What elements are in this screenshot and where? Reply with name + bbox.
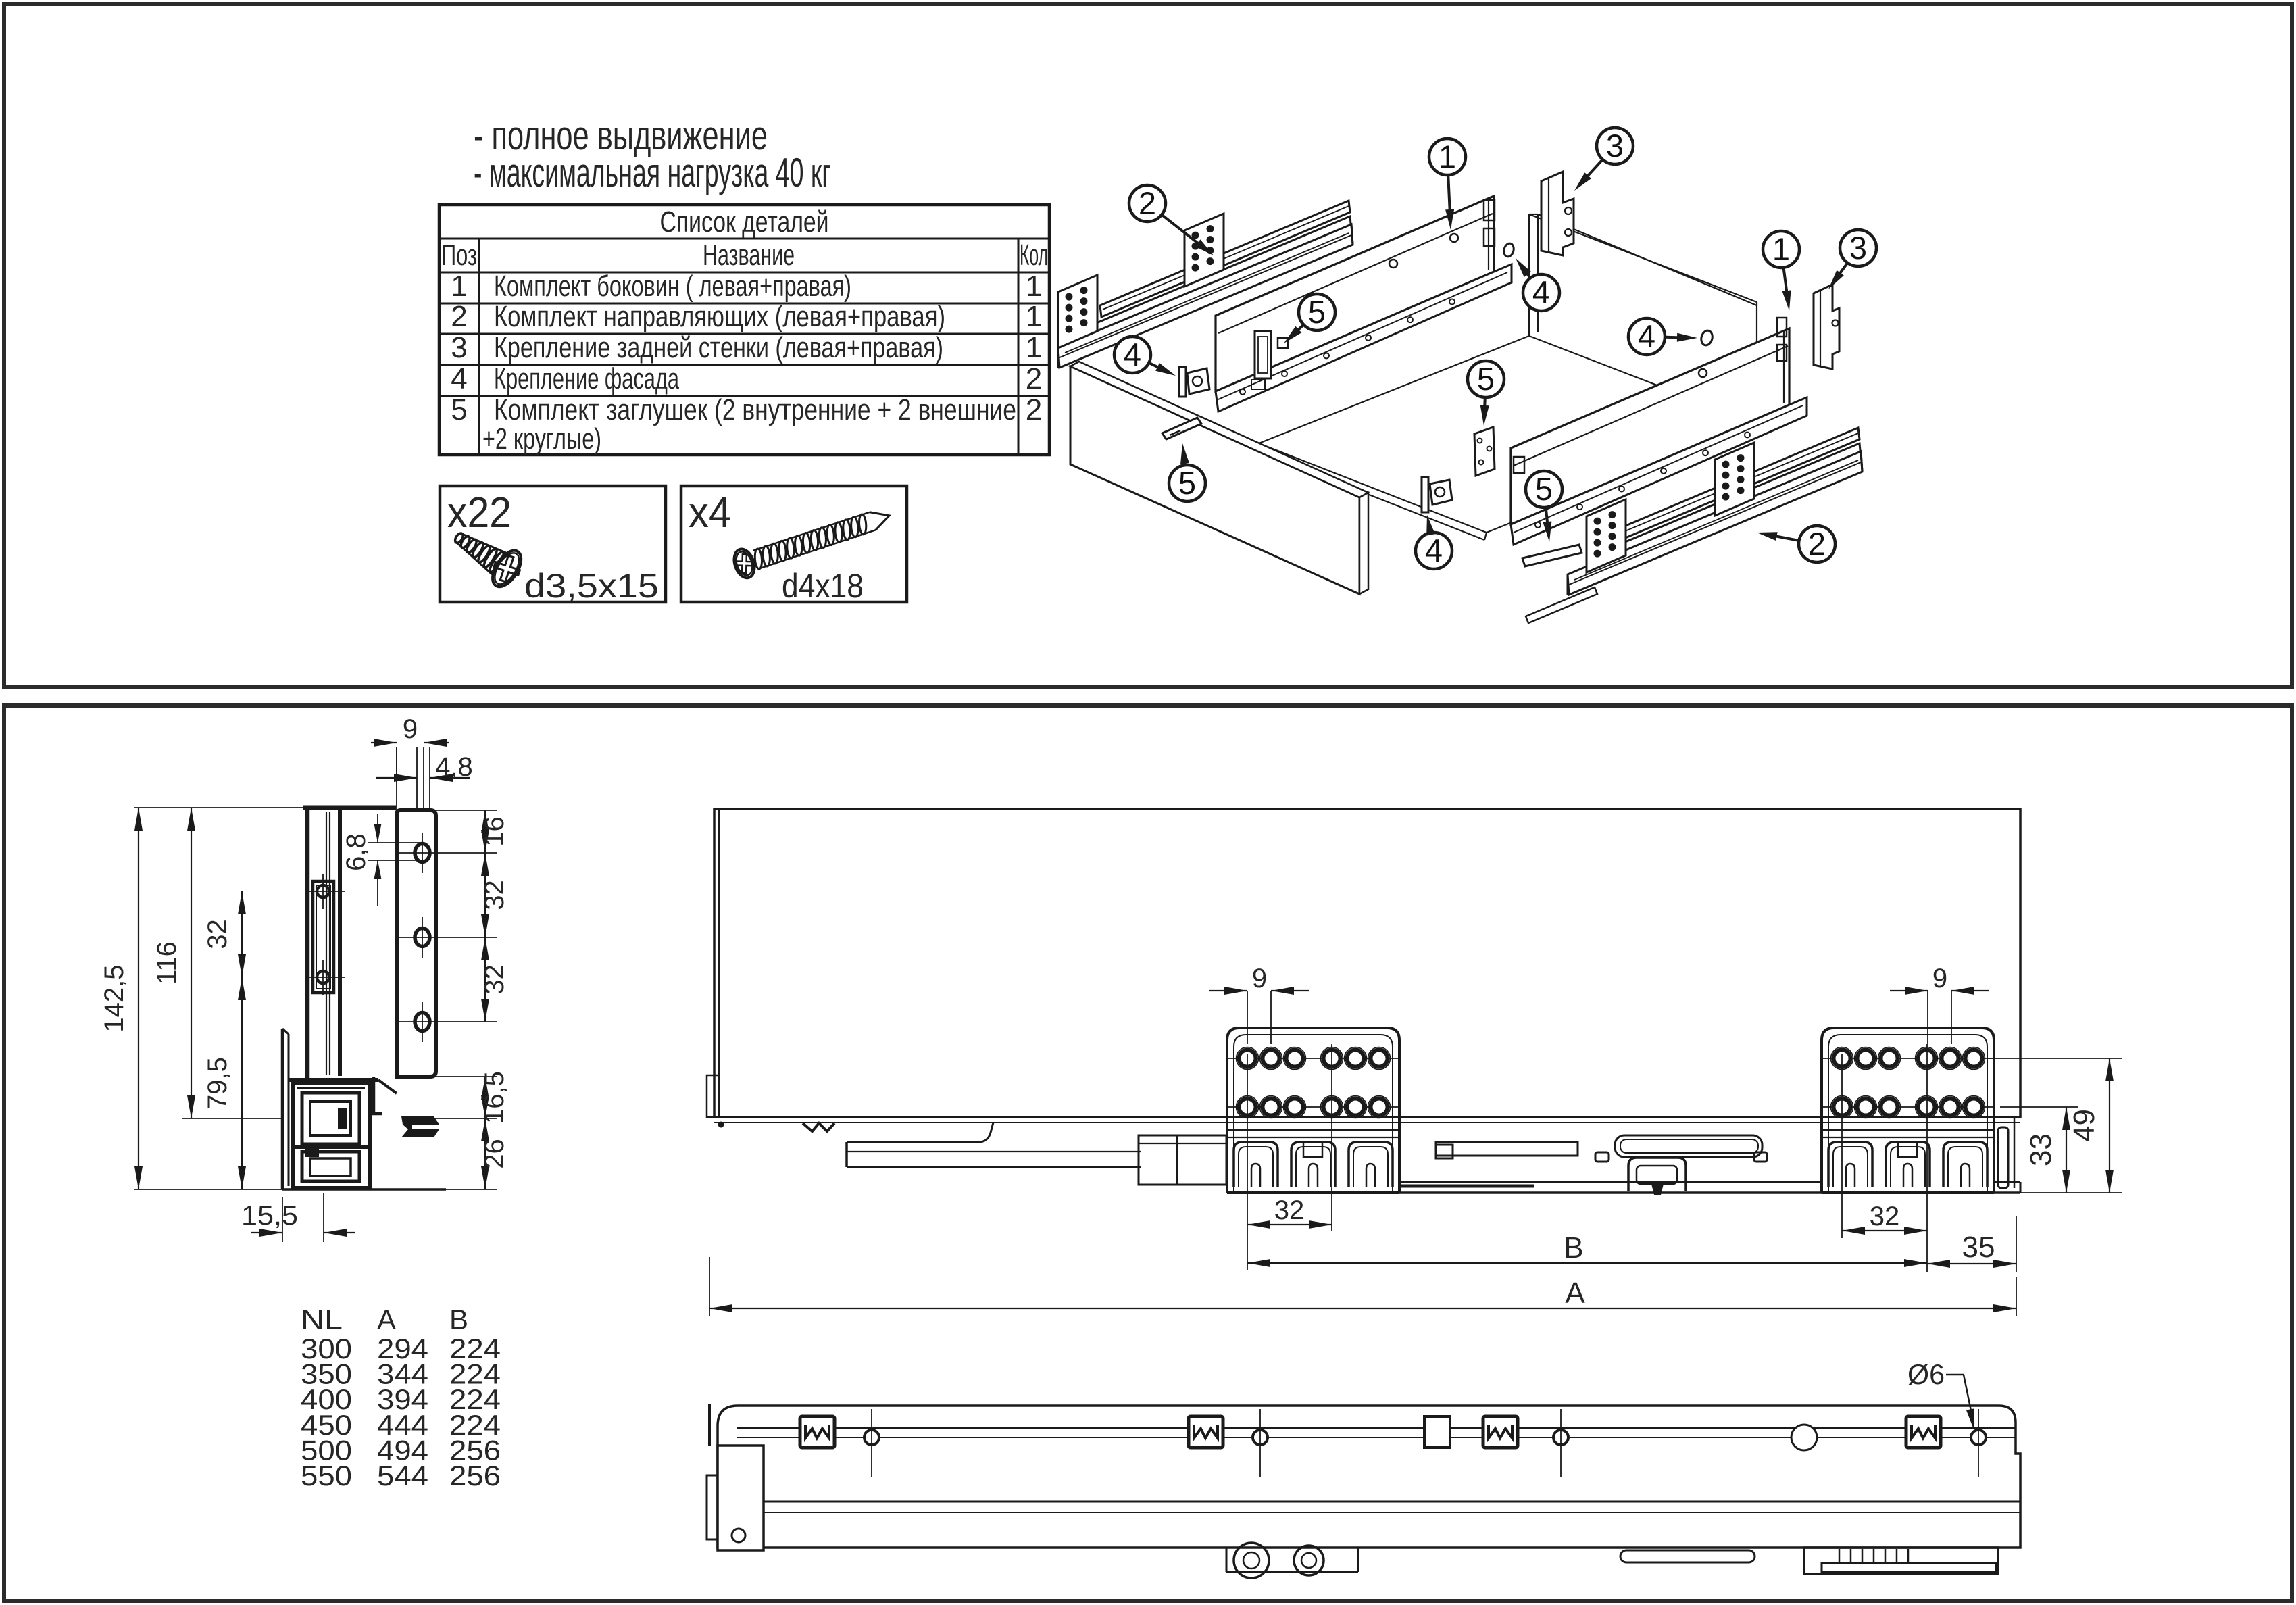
svg-text:2: 2 — [1026, 393, 1042, 426]
svg-text:5: 5 — [1178, 465, 1196, 501]
svg-text:49: 49 — [2068, 1109, 2101, 1142]
svg-text:- максимальная нагрузка 40 кг: - максимальная нагрузка 40 кг — [474, 150, 831, 195]
svg-text:142,5: 142,5 — [99, 964, 129, 1032]
svg-text:32: 32 — [480, 964, 509, 995]
svg-text:33: 33 — [2024, 1133, 2057, 1166]
svg-text:Крепление фасада: Крепление фасада — [494, 362, 679, 395]
svg-text:5: 5 — [451, 393, 467, 426]
svg-text:16,5: 16,5 — [480, 1071, 509, 1124]
svg-text:Поз: Поз — [441, 239, 477, 272]
svg-text:4: 4 — [1425, 533, 1443, 568]
svg-text:Ø6: Ø6 — [1907, 1358, 1945, 1390]
svg-text:1: 1 — [1026, 300, 1042, 333]
svg-text:x4: x4 — [689, 488, 731, 537]
svg-text:79,5: 79,5 — [203, 1057, 232, 1110]
svg-text:9: 9 — [1932, 964, 1947, 993]
svg-text:1: 1 — [451, 270, 467, 303]
svg-text:Комплект направляющих (левая+п: Комплект направляющих (левая+правая) — [494, 300, 945, 333]
svg-text:4: 4 — [1532, 274, 1550, 310]
svg-text:2: 2 — [1808, 526, 1826, 562]
svg-text:Список деталей: Список деталей — [660, 205, 829, 239]
svg-text:Крепление задней стенки (левая: Крепление задней стенки (левая+правая) — [494, 331, 943, 364]
svg-text:5: 5 — [1477, 361, 1495, 397]
svg-text:Комплект заглушек (2 внутренни: Комплект заглушек (2 внутренние + 2 внеш… — [494, 393, 1016, 426]
svg-text:16: 16 — [480, 816, 509, 847]
svg-text:3: 3 — [1849, 230, 1867, 266]
svg-text:32: 32 — [480, 880, 509, 910]
svg-text:4: 4 — [1124, 337, 1141, 372]
svg-text:2: 2 — [451, 300, 467, 333]
svg-text:3: 3 — [1606, 128, 1624, 164]
svg-text:d4x18: d4x18 — [782, 567, 864, 605]
svg-text:4,8: 4,8 — [435, 752, 473, 782]
svg-text:2: 2 — [1139, 185, 1156, 221]
svg-text:15,5: 15,5 — [241, 1201, 298, 1231]
svg-text:B: B — [449, 1304, 468, 1335]
svg-text:+2 круглые): +2 круглые) — [482, 422, 601, 455]
svg-text:1: 1 — [1026, 331, 1042, 364]
svg-text:9: 9 — [403, 714, 418, 744]
svg-text:544: 544 — [377, 1460, 428, 1491]
svg-text:32: 32 — [1274, 1195, 1305, 1225]
svg-text:4: 4 — [451, 362, 467, 395]
svg-text:32: 32 — [203, 919, 232, 949]
svg-text:5: 5 — [1535, 471, 1553, 507]
svg-text:A: A — [1565, 1277, 1585, 1310]
svg-text:1: 1 — [1026, 270, 1042, 303]
svg-text:26: 26 — [480, 1139, 509, 1169]
svg-text:x22: x22 — [447, 488, 511, 537]
svg-text:5: 5 — [1308, 294, 1326, 330]
svg-text:A: A — [377, 1304, 396, 1335]
svg-text:32: 32 — [1870, 1202, 1900, 1231]
svg-text:NL: NL — [301, 1304, 343, 1335]
svg-text:B: B — [1564, 1231, 1583, 1264]
svg-text:4: 4 — [1638, 318, 1655, 354]
svg-text:d3,5x15: d3,5x15 — [524, 567, 659, 605]
svg-text:Комплект боковин ( левая+права: Комплект боковин ( левая+правая) — [494, 270, 851, 303]
svg-text:9: 9 — [1252, 964, 1267, 993]
svg-text:256: 256 — [449, 1460, 501, 1491]
svg-text:550: 550 — [301, 1460, 352, 1491]
svg-text:1: 1 — [1772, 231, 1790, 267]
svg-text:3: 3 — [451, 331, 467, 364]
svg-text:1: 1 — [1439, 139, 1456, 174]
svg-text:2: 2 — [1026, 362, 1042, 395]
svg-text:116: 116 — [152, 941, 182, 985]
svg-text:Кол: Кол — [1020, 239, 1048, 272]
svg-text:Название: Название — [703, 239, 795, 272]
svg-text:6,8: 6,8 — [341, 833, 371, 871]
svg-text:35: 35 — [1962, 1231, 1995, 1264]
